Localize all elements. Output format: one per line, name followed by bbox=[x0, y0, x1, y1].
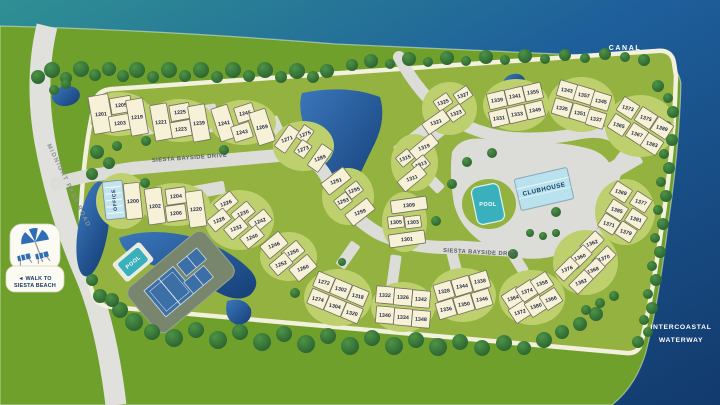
tree-icon bbox=[86, 274, 98, 286]
tree-icon bbox=[462, 157, 472, 167]
tree-icon bbox=[580, 53, 590, 63]
tree-icon bbox=[129, 62, 145, 78]
tree-icon bbox=[338, 258, 346, 266]
tree-icon bbox=[517, 341, 531, 355]
tree-icon bbox=[461, 56, 471, 66]
tree-icon bbox=[452, 334, 468, 350]
tree-icon bbox=[536, 332, 552, 348]
tree-icon bbox=[551, 207, 561, 217]
tree-icon bbox=[147, 71, 159, 83]
tree-icon bbox=[518, 49, 532, 63]
tree-icon bbox=[555, 325, 569, 339]
tree-icon bbox=[581, 305, 591, 315]
tree-icon bbox=[44, 62, 60, 78]
tree-icon bbox=[500, 55, 510, 65]
building-unit-1340: 1340 bbox=[375, 306, 394, 325]
tree-icon bbox=[479, 50, 493, 64]
building-number: 1220 bbox=[190, 206, 202, 213]
building-number: 1239 bbox=[193, 120, 205, 127]
tree-icon bbox=[663, 162, 675, 174]
building-number: 1200 bbox=[127, 199, 139, 206]
building-number: 1225 bbox=[174, 109, 186, 116]
tree-icon bbox=[667, 106, 679, 118]
tree-icon bbox=[650, 233, 660, 243]
tree-icon bbox=[526, 229, 534, 237]
tree-icon bbox=[653, 205, 663, 215]
walk-to-label-line1: ◄ WALK TO bbox=[18, 276, 51, 282]
building-number: 1206 bbox=[170, 210, 182, 217]
tree-icon bbox=[423, 57, 433, 67]
tree-icon bbox=[257, 62, 273, 78]
tree-icon bbox=[93, 289, 107, 303]
tree-icon bbox=[346, 59, 358, 71]
tree-icon bbox=[474, 340, 490, 356]
building-number: 1301 bbox=[401, 236, 413, 243]
tree-icon bbox=[639, 315, 649, 325]
tree-icon bbox=[89, 69, 101, 81]
building-number: 1305 bbox=[390, 219, 402, 226]
building-number: 1332 bbox=[379, 293, 391, 300]
tree-icon bbox=[103, 157, 115, 169]
tree-icon bbox=[289, 63, 305, 79]
building-number: 1204 bbox=[170, 193, 182, 200]
building-unit-1204: 1204 bbox=[165, 187, 187, 206]
tree-icon bbox=[573, 317, 587, 331]
canal-label: CANAL bbox=[609, 45, 642, 52]
building-unit-1206: 1206 bbox=[165, 204, 187, 223]
tree-icon bbox=[647, 261, 657, 271]
tree-icon bbox=[487, 148, 497, 158]
tree-icon bbox=[179, 70, 191, 82]
tree-icon bbox=[276, 326, 292, 342]
tree-icon bbox=[632, 336, 644, 348]
office-building: OFFICE bbox=[102, 180, 126, 220]
tree-icon bbox=[559, 49, 571, 61]
tree-icon bbox=[657, 218, 669, 230]
building-unit-1342: 1342 bbox=[411, 290, 430, 309]
tree-icon bbox=[102, 62, 116, 76]
building-number: 1303 bbox=[407, 219, 419, 226]
tree-icon bbox=[654, 246, 666, 258]
tree-icon bbox=[620, 52, 630, 62]
resort-map-canvas: POOL POOL OFFICE CLUBHOUSE 1201120512031… bbox=[0, 0, 720, 405]
tree-icon bbox=[385, 59, 395, 69]
tree-icon bbox=[402, 52, 416, 66]
walk-to-label-line2: SIESTA BEACH bbox=[14, 283, 56, 289]
building-number: 1205 bbox=[115, 102, 127, 109]
tree-icon bbox=[253, 333, 271, 351]
tree-icon bbox=[320, 328, 336, 344]
building-unit-1332: 1332 bbox=[375, 286, 394, 305]
building-unit-1305: 1305 bbox=[387, 215, 405, 229]
building-number: 1223 bbox=[175, 126, 187, 133]
tree-icon bbox=[86, 168, 98, 180]
tree-icon bbox=[243, 70, 255, 82]
intercoastal-waterway-label-line2: WATERWAY bbox=[659, 337, 703, 344]
building-number: 1203 bbox=[114, 120, 126, 127]
building-number: 1334 bbox=[397, 315, 409, 322]
building-number: 1340 bbox=[379, 313, 391, 320]
tree-icon bbox=[539, 232, 547, 240]
intercoastal-waterway-label-line1: INTERCOASTAL bbox=[650, 324, 711, 331]
tree-icon bbox=[105, 293, 119, 307]
tree-icon bbox=[209, 331, 227, 349]
tree-icon bbox=[112, 141, 122, 151]
building-unit-1200: 1200 bbox=[123, 182, 143, 219]
tree-icon bbox=[275, 71, 287, 83]
tree-icon bbox=[232, 324, 248, 340]
tree-icon bbox=[307, 71, 319, 83]
tree-icon bbox=[496, 335, 512, 351]
tree-icon bbox=[297, 335, 315, 353]
tree-icon bbox=[61, 79, 71, 89]
tree-icon bbox=[117, 70, 129, 82]
tree-icon bbox=[193, 62, 209, 78]
tree-icon bbox=[408, 332, 424, 348]
building-unit-1326: 1326 bbox=[393, 288, 412, 307]
building-unit-1225: 1225 bbox=[169, 102, 191, 121]
tree-icon bbox=[659, 149, 669, 159]
tree-icon bbox=[320, 64, 334, 78]
tree-icon bbox=[652, 80, 664, 92]
tree-icon bbox=[364, 54, 378, 68]
tree-icon bbox=[656, 177, 666, 187]
tree-icon bbox=[429, 338, 447, 356]
tree-icon bbox=[638, 54, 650, 66]
tree-icon bbox=[90, 145, 104, 159]
tree-icon bbox=[225, 62, 241, 78]
beach-badge: ◄ WALK TO SIESTA BEACH bbox=[6, 224, 64, 292]
tree-icon bbox=[188, 322, 204, 338]
tree-icon bbox=[650, 274, 662, 286]
tree-icon bbox=[660, 190, 672, 202]
tree-icon bbox=[161, 62, 177, 78]
tree-icon bbox=[663, 93, 673, 103]
tree-icon bbox=[165, 329, 183, 347]
tree-icon bbox=[31, 70, 45, 84]
tree-icon bbox=[643, 289, 653, 299]
building-number: 1326 bbox=[397, 295, 409, 302]
site-map: POOL POOL OFFICE CLUBHOUSE 1201120512031… bbox=[0, 0, 720, 405]
tree-icon bbox=[125, 313, 143, 331]
building-number: 1221 bbox=[155, 119, 167, 126]
tree-icon bbox=[385, 337, 403, 355]
tree-icon bbox=[364, 330, 380, 346]
tree-icon bbox=[211, 71, 223, 83]
tree-icon bbox=[589, 307, 603, 321]
tree-icon bbox=[447, 179, 457, 189]
building-unit-1223: 1223 bbox=[170, 119, 192, 138]
tree-icon bbox=[552, 229, 560, 237]
tree-icon bbox=[341, 337, 359, 355]
building-number: 1348 bbox=[415, 317, 427, 324]
tree-icon bbox=[540, 54, 550, 64]
building-unit-1303: 1303 bbox=[404, 215, 422, 229]
tree-icon bbox=[141, 136, 151, 146]
tree-icon bbox=[73, 61, 89, 77]
building-unit-1334: 1334 bbox=[393, 308, 412, 327]
building-number: 1202 bbox=[149, 203, 161, 210]
tree-icon bbox=[290, 288, 300, 298]
building-unit-1348: 1348 bbox=[411, 310, 430, 329]
building-number: 1342 bbox=[415, 297, 427, 304]
tree-icon bbox=[440, 51, 454, 65]
tree-icon bbox=[609, 291, 619, 301]
pool-center-label: POOL bbox=[479, 202, 497, 208]
tree-icon bbox=[140, 178, 150, 188]
tree-icon bbox=[431, 216, 441, 226]
building-number: 1219 bbox=[131, 114, 143, 121]
tree-icon bbox=[646, 302, 658, 314]
tree-icon bbox=[595, 298, 605, 308]
building-number: 1309 bbox=[403, 202, 415, 209]
tree-icon bbox=[49, 85, 59, 95]
building-number: 1201 bbox=[95, 111, 107, 118]
tree-icon bbox=[144, 324, 160, 340]
